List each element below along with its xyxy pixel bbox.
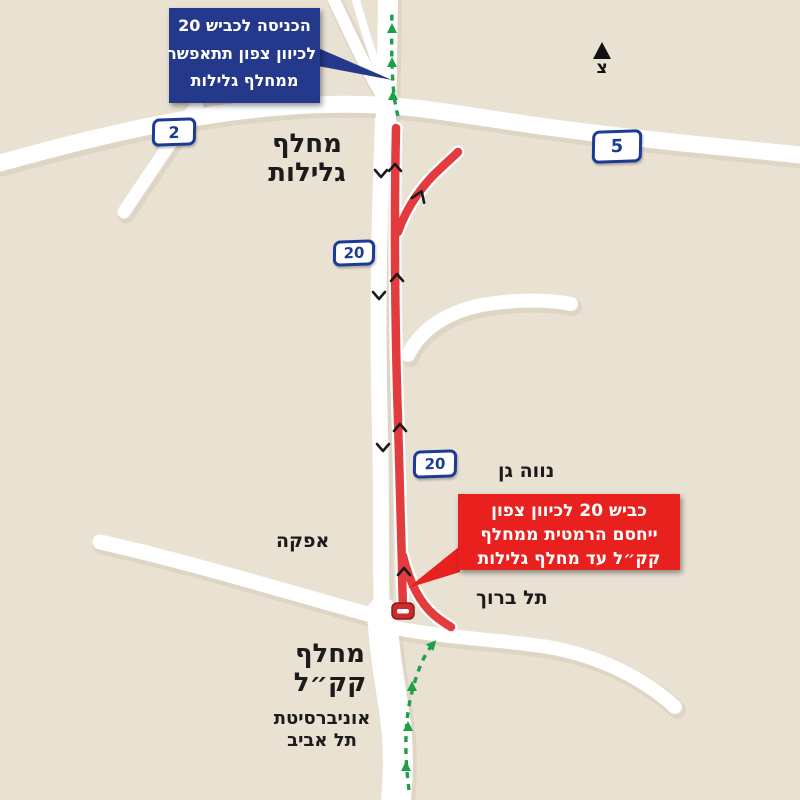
label-line: תל אביב: [270, 730, 374, 752]
kkl-west-road: [100, 542, 382, 618]
afeka-label: אפקה: [276, 531, 329, 552]
route-shield-5: 5: [592, 129, 643, 164]
neve-gan-label: נווה גן: [498, 461, 554, 482]
callout-line: לכיוון צפון תתאפשר: [173, 40, 316, 68]
route-number: 2: [168, 122, 179, 141]
red-callout-tail: [408, 546, 460, 588]
route-number: 20: [343, 244, 364, 263]
kkl-east-road: [396, 628, 675, 707]
road-main-southbound-lane: [379, 120, 383, 616]
callout-line: כביש 20 לכיוון צפון: [462, 499, 676, 523]
route-shield-20-north: 20: [333, 239, 375, 266]
road-main-south: [382, 612, 398, 800]
callout-line: ממחלף גלילות: [173, 67, 316, 95]
kkl-interchange-label: מחלף קק״ל: [286, 640, 374, 698]
label-line: גלילות: [260, 159, 354, 188]
glilot-interchange-label: מחלף גלילות: [260, 130, 354, 188]
callout-line: ייחסם הרמטית ממחלף: [462, 523, 676, 547]
road-closure-map: הכניסה לכביש 20 לכיוון צפון תתאפשר ממחלף…: [0, 0, 800, 800]
label-line: אוניברסיטת: [270, 708, 374, 730]
north-letter: צ: [590, 59, 614, 78]
route-shield-2: 2: [152, 117, 196, 147]
map-canvas: [0, 0, 800, 800]
callout-line: קק״ל עד מחלף גלילות: [462, 547, 676, 571]
route-number: 5: [611, 136, 624, 157]
route-number: 20: [424, 455, 445, 474]
label-line: מחלף: [260, 130, 354, 159]
tel-aviv-university-label: אוניברסיטת תל אביב: [270, 708, 374, 751]
label-line: קק״ל: [286, 669, 374, 698]
closed-route-glilot-ramp: [398, 152, 458, 232]
route-shield-20-south: 20: [413, 449, 457, 479]
label-line: מחלף: [286, 640, 374, 669]
northbound-entry-callout: הכניסה לכביש 20 לכיוון צפון תתאפשר ממחלף…: [169, 8, 320, 103]
callout-line: הכניסה לכביש 20: [173, 12, 316, 40]
road-closure-callout: כביש 20 לכיוון צפון ייחסם הרמטית ממחלף ק…: [458, 494, 680, 570]
road-closed-icon: [392, 603, 414, 619]
north-indicator: צ: [590, 42, 614, 78]
tel-baruch-label: תל ברוך: [476, 588, 548, 609]
north-arrow-icon: [593, 42, 611, 59]
